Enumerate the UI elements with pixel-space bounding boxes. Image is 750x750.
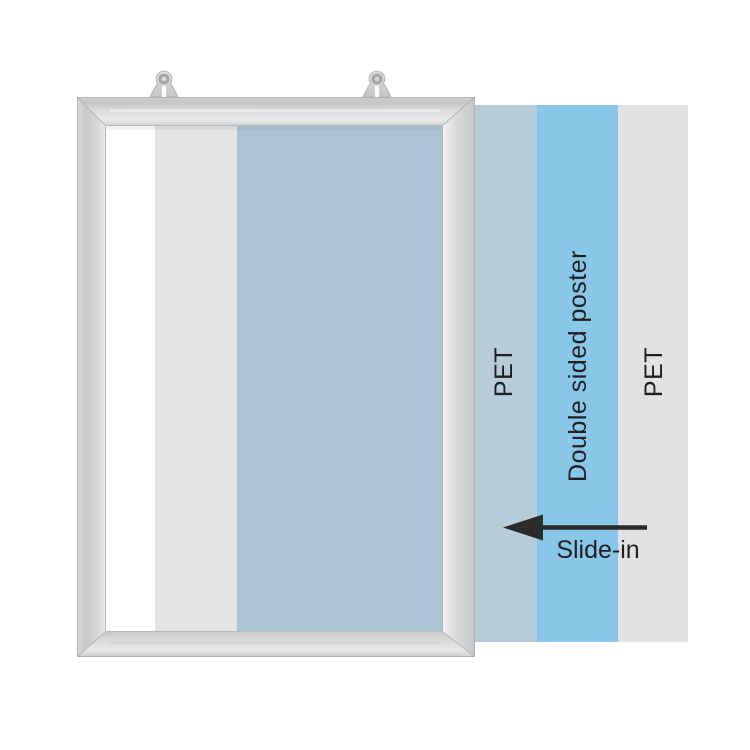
frame-backing <box>105 125 155 632</box>
pet-back-label: PET <box>640 347 668 397</box>
frame-bottom-bar <box>77 632 475 657</box>
tab-slot <box>162 86 166 98</box>
diagram-svg: PET Double sided poster PET <box>0 0 750 750</box>
pet-inside-panel <box>155 125 237 632</box>
pet-front-label: PET <box>490 347 518 397</box>
frame-interior <box>105 125 443 632</box>
frame-right-bar <box>443 97 475 657</box>
slide-in-frame-diagram: PET Double sided poster PET <box>0 0 750 750</box>
poster-label: Double sided poster <box>564 250 592 482</box>
slide-in-label: Slide-in <box>556 536 639 564</box>
tab-slot <box>375 86 379 98</box>
tab-hole-center <box>375 77 380 82</box>
tab-hole-center <box>162 77 167 82</box>
frame-bottom-shade <box>110 641 440 644</box>
frame-top-highlight <box>110 109 440 112</box>
frame-left-bar <box>77 97 105 657</box>
poster-inside-panel <box>237 125 443 632</box>
